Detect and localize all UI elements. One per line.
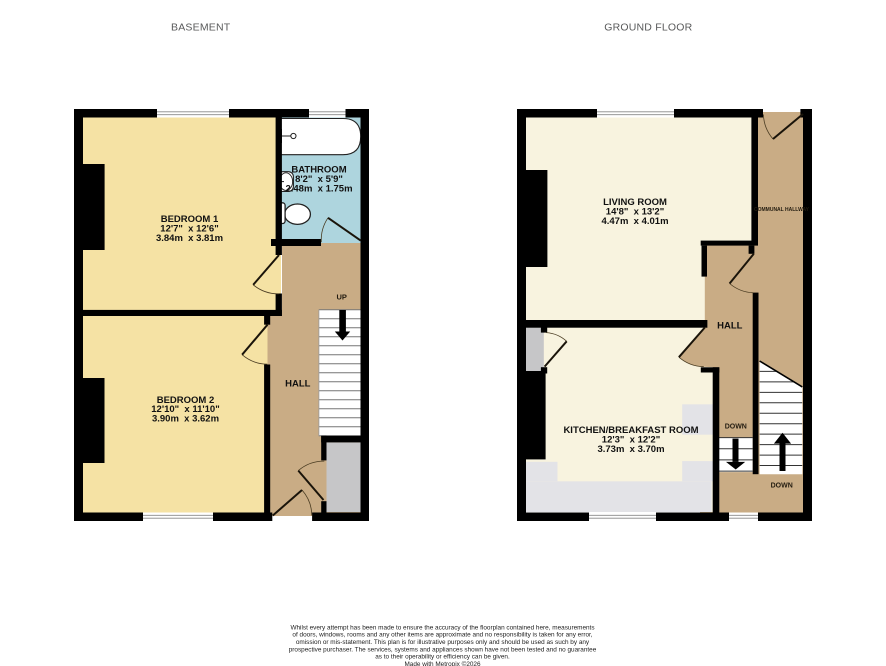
svg-text:4.47m x 4.01m: 4.47m x 4.01m: [601, 216, 668, 227]
svg-text:COMMUNAL HALLWAY: COMMUNAL HALLWAY: [754, 207, 810, 213]
svg-text:HALL: HALL: [285, 378, 311, 389]
svg-text:omission or mis-statement. Thi: omission or mis-statement. This plan is …: [296, 639, 590, 646]
svg-text:as to their operability or eff: as to their operability or efficiency ca…: [375, 654, 510, 661]
svg-text:DOWN: DOWN: [771, 483, 793, 490]
svg-text:HALL: HALL: [717, 320, 743, 331]
svg-text:of doors, windows, rooms and a: of doors, windows, rooms and any other i…: [292, 632, 592, 639]
svg-text:2.48m x 1.75m: 2.48m x 1.75m: [285, 184, 352, 195]
svg-text:3.84m x 3.81m: 3.84m x 3.81m: [156, 233, 223, 244]
svg-text:prospective purchaser. The ser: prospective purchaser. The services, sys…: [289, 646, 597, 653]
svg-text:3.73m x 3.70m: 3.73m x 3.70m: [597, 444, 664, 455]
svg-text:UP: UP: [336, 293, 346, 302]
svg-text:3.90m x 3.62m: 3.90m x 3.62m: [152, 414, 219, 425]
svg-text:Made with Metropix ©2026: Made with Metropix ©2026: [404, 660, 481, 666]
svg-text:DOWN: DOWN: [725, 424, 747, 431]
svg-text:GROUND FLOOR: GROUND FLOOR: [604, 22, 692, 34]
svg-text:Whilst every attempt has been: Whilst every attempt has been made to en…: [290, 624, 594, 631]
svg-text:BASEMENT: BASEMENT: [171, 22, 231, 34]
